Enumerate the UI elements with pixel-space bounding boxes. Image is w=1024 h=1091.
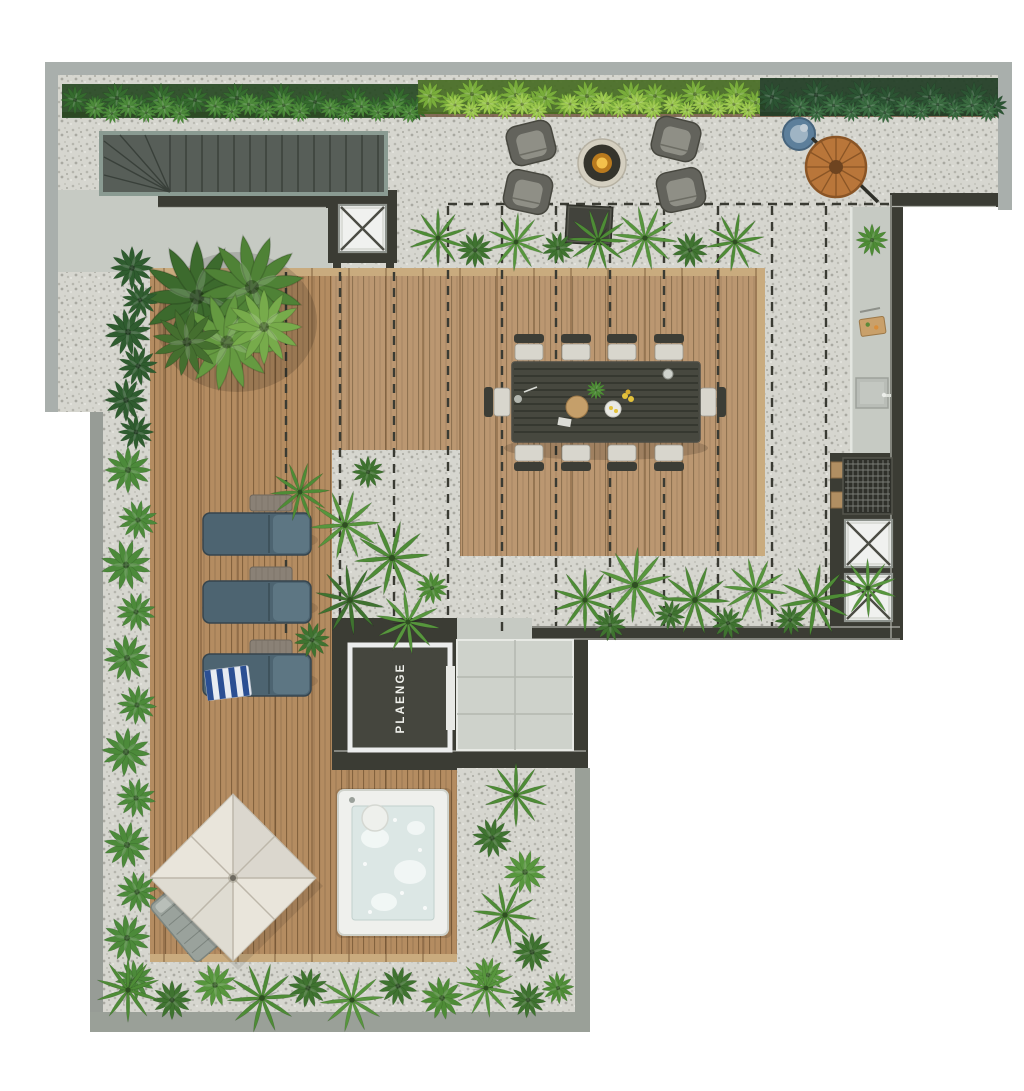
cutting-board: [859, 316, 886, 336]
roof-hatch: [339, 205, 386, 252]
elevator-door: [446, 666, 455, 730]
roof-hatch: [845, 520, 892, 567]
dining-chair: [654, 334, 684, 360]
spa-control: [349, 797, 355, 803]
lobby-south-wall: [332, 750, 588, 768]
deck-edge-board-right: [757, 268, 765, 556]
sun-lounger: [203, 581, 311, 623]
concrete-lobby-landing: [457, 618, 532, 642]
sink: [856, 378, 891, 408]
spa-seat: [362, 805, 388, 831]
dining-chair: [561, 445, 591, 471]
elevator-lobby-tiles: [457, 640, 573, 750]
hatch-foot: [333, 263, 341, 268]
dining-chair: [654, 445, 684, 471]
elevator: PLAENGE: [350, 645, 455, 750]
sun-lounger: [203, 513, 311, 555]
lobby-east-wall: [573, 626, 588, 768]
rooftop-floor-plan: PLAENGE: [0, 0, 1024, 1091]
elevator-brand-label: PLAENGE: [395, 663, 407, 734]
fire-pit: [578, 139, 626, 187]
striped-towel: [204, 665, 251, 700]
round-daybed: [783, 118, 815, 150]
edge-wall-lower-left: [90, 400, 103, 1032]
outer-wall-top: [45, 62, 1012, 76]
staircase: [101, 133, 386, 194]
hot-tub: [336, 788, 452, 938]
sun-lounger-zone: [202, 495, 318, 701]
top-right-wall: [892, 193, 998, 207]
dining-chair: [607, 334, 637, 360]
floor-plan-svg: PLAENGE: [0, 0, 1024, 1091]
fire-glow: [597, 158, 608, 169]
dining-chair: [700, 387, 726, 417]
outer-wall-right: [998, 62, 1012, 210]
dining-chair: [484, 387, 510, 417]
dining-chair: [561, 334, 591, 360]
outer-wall-left: [45, 62, 58, 412]
dining-chair: [514, 445, 544, 471]
dining-chair: [514, 334, 544, 360]
hatch-foot: [386, 263, 394, 268]
edge-wall-lower-right: [575, 768, 590, 1018]
counter-edge-highlight: [850, 207, 853, 455]
dining-chair: [607, 445, 637, 471]
